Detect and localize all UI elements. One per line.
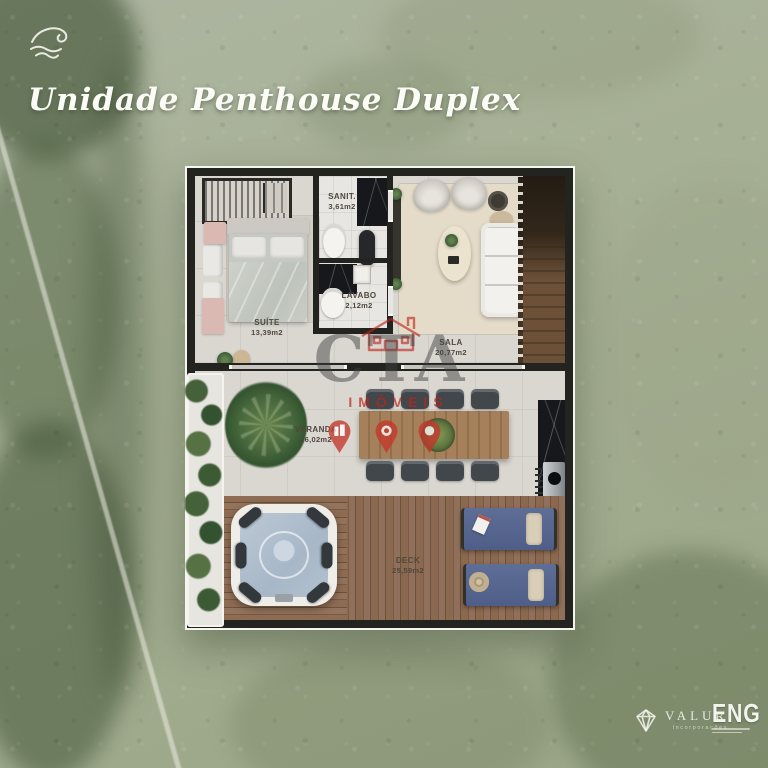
wall	[187, 168, 573, 176]
nightstand	[204, 222, 226, 244]
headrest	[236, 543, 247, 569]
room-label-deck: DECK 25,59m2	[392, 555, 424, 577]
dresser	[202, 298, 224, 334]
dining-chair	[471, 389, 499, 409]
grill	[543, 462, 565, 500]
door-opening	[388, 190, 393, 222]
watermark-pin-building	[327, 419, 352, 455]
room-label-lavabo: LAVABO 2,12m2	[342, 290, 377, 312]
room-label-suite: SUÍTE 13,39m2	[251, 317, 283, 339]
wall	[187, 168, 195, 384]
bed-pillows	[232, 237, 304, 259]
eng-tagline-line	[712, 732, 742, 734]
dining-chair	[401, 461, 429, 481]
hot-tub	[231, 504, 337, 606]
watermark-word: IMÓVEIS	[336, 394, 461, 410]
staircase	[518, 176, 565, 366]
lavabo-sink	[353, 265, 371, 284]
table-tray	[448, 256, 459, 264]
wall	[313, 176, 319, 334]
watermark-pin-target	[374, 419, 399, 455]
room-area: 25,59m2	[392, 566, 424, 577]
bed-duvet	[229, 262, 307, 322]
lounger-pillow	[528, 569, 544, 601]
door-opening	[388, 286, 393, 316]
table-plant	[445, 234, 458, 247]
room-area: 13,39m2	[251, 328, 283, 339]
room-label-sanit: SANIT. 3,61m2	[328, 191, 356, 213]
toilet	[323, 224, 345, 258]
headrest	[322, 543, 333, 569]
room-name: DECK	[396, 556, 420, 565]
bed	[229, 234, 307, 322]
eng-name: ENG	[712, 700, 761, 726]
room-area: 2,12m2	[342, 301, 377, 312]
room-area: 3,61m2	[328, 202, 356, 213]
dining-chair	[436, 461, 464, 481]
lounger-pillow	[526, 513, 542, 545]
dining-chair	[366, 461, 394, 481]
sun-hat	[469, 572, 489, 592]
control-panel	[275, 594, 293, 602]
hot-tub-water	[240, 513, 328, 597]
room-name: SANIT.	[328, 192, 356, 201]
page-title: Unidade Penthouse Duplex	[28, 82, 521, 118]
marketing-image: Unidade Penthouse Duplex	[0, 0, 768, 768]
watermark-brand: CTA	[308, 328, 473, 392]
room-name: SUÍTE	[254, 318, 280, 327]
gem-icon	[632, 708, 660, 733]
dining-chair	[471, 461, 499, 481]
planter	[187, 373, 224, 627]
shower	[357, 178, 391, 226]
tv-console	[392, 193, 401, 281]
eng-logo: ENG	[712, 700, 768, 733]
room-name: LAVABO	[342, 291, 377, 300]
wall	[315, 258, 391, 263]
wall	[565, 168, 573, 628]
wall	[187, 620, 573, 628]
watermark-pin-dot	[417, 419, 442, 455]
tray-side-table	[488, 191, 508, 211]
wave-icon	[28, 22, 74, 60]
eng-tagline-line	[712, 728, 750, 730]
